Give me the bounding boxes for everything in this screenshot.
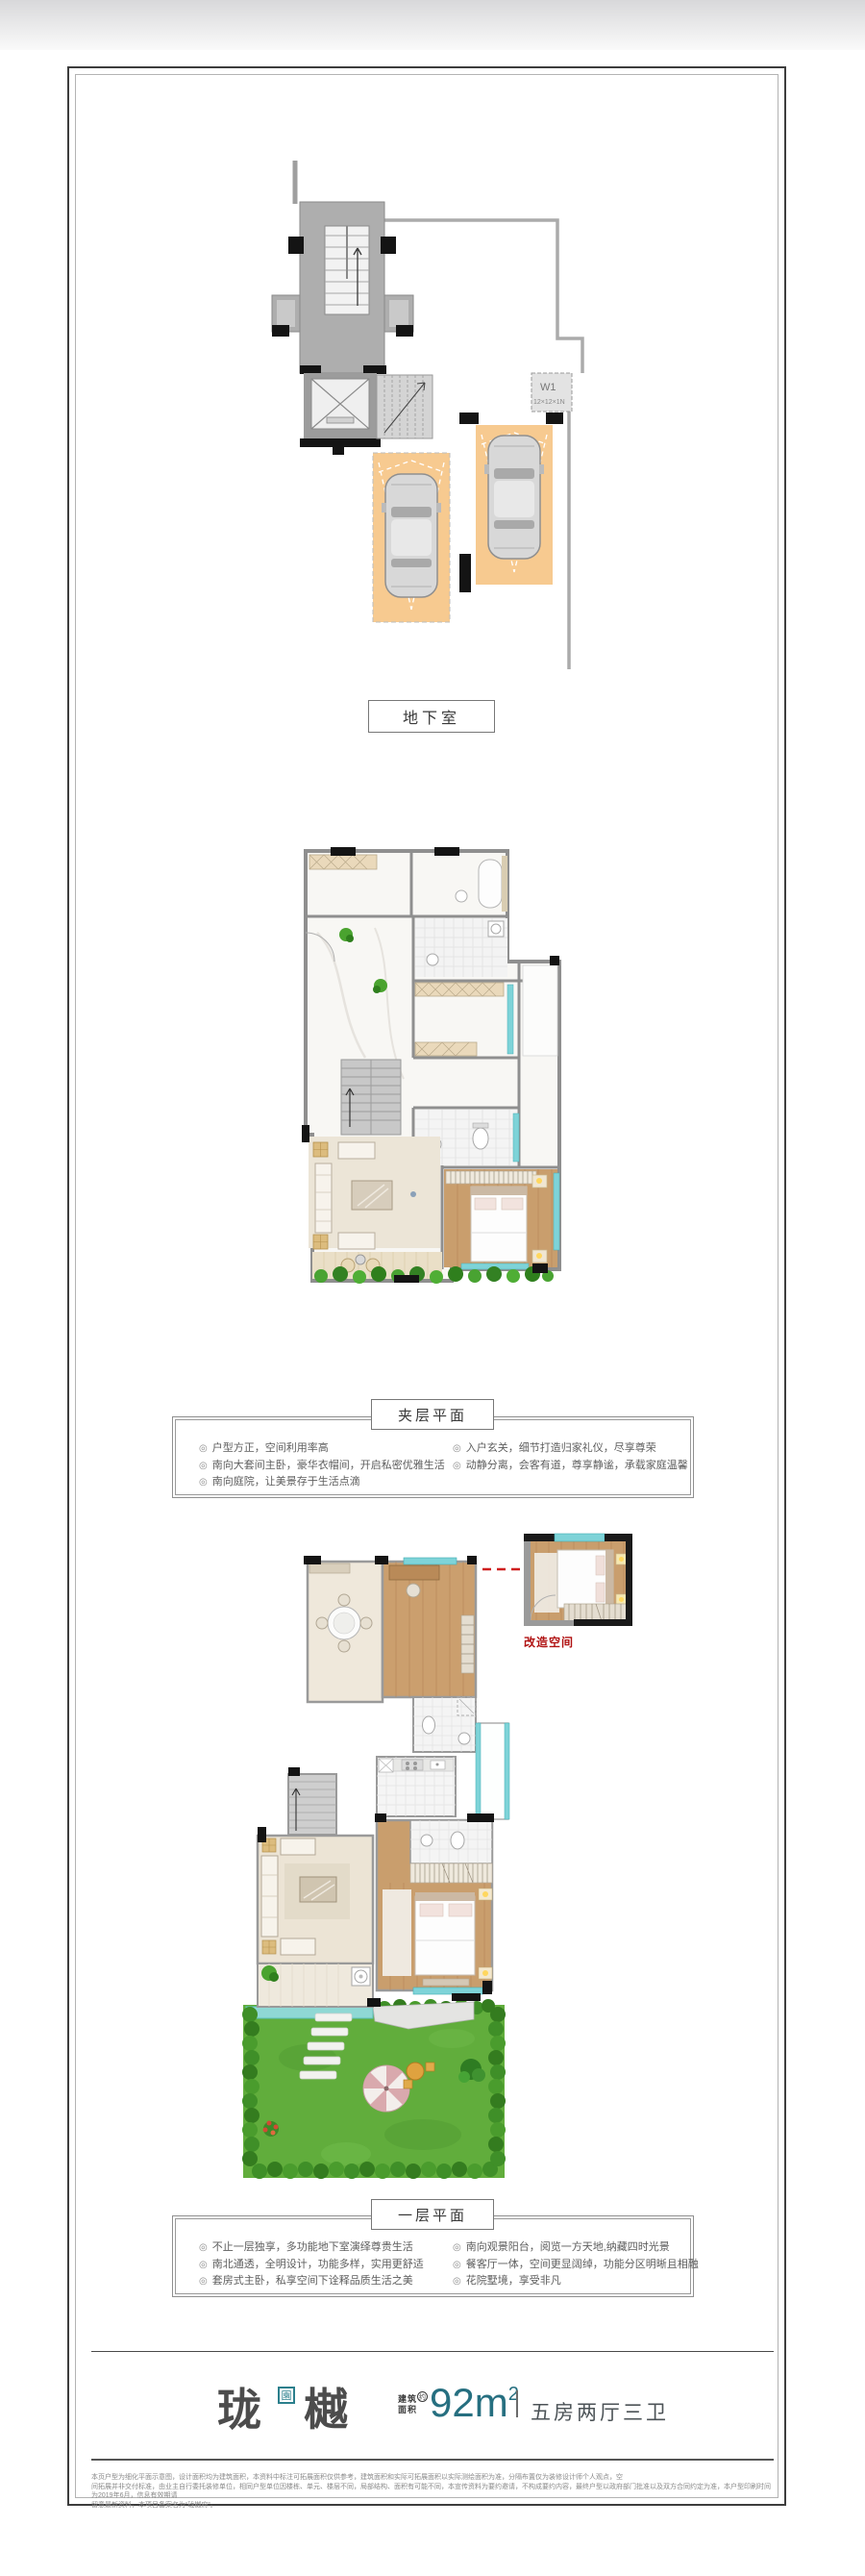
- kitchen: [377, 1757, 456, 1816]
- bullet-text: 南向大套间主卧，豪华衣帽间，开启私密优雅生活: [212, 1460, 445, 1471]
- list-item: ◎南向大套间主卧，豪华衣帽间，开启私密优雅生活: [199, 1458, 445, 1475]
- brand-char-first: 珑: [217, 2375, 261, 2438]
- area-label-top: 建筑: [398, 2394, 417, 2405]
- list-item: ◎入户玄关，细节打造归家礼仪，尽享尊荣: [453, 1440, 688, 1458]
- mezzanine-floor-plan: [288, 837, 577, 1288]
- list-item: ◎南向庭院，让美景存于生活点滴: [199, 1474, 445, 1491]
- basement-stairwell: [325, 226, 369, 314]
- entry-porch: [258, 1963, 373, 2007]
- list-item: ◎套房式主卧，私享空间下诠释品质生活之美: [199, 2273, 424, 2290]
- bullet-text: 南向庭院，让美景存于生活点滴: [212, 1476, 360, 1488]
- disclaimer-line-1: 本页户型为细化平面示意图，设计面积均为建筑面积，本资料中标注可拓展面积仅供参考，…: [91, 2473, 776, 2483]
- side-balcony: [476, 1723, 509, 1819]
- bullet-icon: ◎: [199, 1443, 208, 1454]
- list-item: ◎户型方正，空间利用率高: [199, 1440, 445, 1458]
- mezzanine-living: [309, 1137, 440, 1249]
- basement-floor-plan: W1 12×12×1N: [240, 135, 625, 673]
- bullet-icon: ◎: [199, 2276, 208, 2287]
- floor1-bullets-right: ◎南向观景阳台，阅览一方天地,纳藏四时光景 ◎餐客厅一体，空间更显阔绰，功能分区…: [453, 2239, 699, 2290]
- basement-elevator: [304, 373, 377, 438]
- car-left: [382, 474, 441, 597]
- bathroom-upper: [413, 1697, 476, 1752]
- stairs-floor1: [288, 1774, 336, 1835]
- floor1-bullets-left: ◎不止一层独享，多功能地下室演绎尊贵生活 ◎南北通透，全明设计，功能多样，实用更…: [199, 2239, 424, 2290]
- master-bedroom: [377, 1820, 492, 1994]
- mezzanine-label-box: 夹层平面: [371, 1399, 494, 1430]
- brand-seal-icon: 園: [278, 2387, 295, 2404]
- mezzanine-stairs: [341, 1060, 401, 1135]
- bullet-icon: ◎: [199, 2260, 208, 2270]
- bullet-text: 南北通透，全明设计，功能多样，实用更舒适: [212, 2259, 424, 2270]
- mezzanine-bullets-left: ◎户型方正，空间利用率高 ◎南向大套间主卧，豪华衣帽间，开启私密优雅生活 ◎南向…: [199, 1440, 445, 1491]
- bullet-text: 动静分离，会客有道，尊享静谧，承载家庭温馨: [466, 1460, 688, 1471]
- bullet-text: 南向观景阳台，阅览一方天地,纳藏四时光景: [466, 2241, 670, 2253]
- mezzanine-bedroom: [444, 1169, 559, 1269]
- bullet-icon: ◎: [199, 2242, 208, 2253]
- mezzanine-closet-top: [309, 855, 377, 869]
- bullet-text: 餐客厅一体，空间更显阔绰，功能分区明晰且相融: [466, 2259, 699, 2270]
- footer-bottom-rule: [91, 2459, 774, 2461]
- list-item: ◎餐客厅一体，空间更显阔绰，功能分区明晰且相融: [453, 2257, 699, 2274]
- bullet-icon: ◎: [453, 2242, 461, 2253]
- disclaimer-line-3: 留意最新资料，本项目备案名为“珑樾府”。: [91, 2501, 776, 2511]
- legend-code: W1: [540, 382, 556, 393]
- bullet-text: 不止一层独享，多功能地下室演绎尊贵生活: [212, 2241, 413, 2253]
- list-item: ◎动静分离，会客有道，尊享静谧，承载家庭温馨: [453, 1458, 688, 1475]
- study-room: [383, 1558, 476, 1697]
- car-right: [484, 436, 544, 559]
- legend-size: 12×12×1N: [533, 399, 565, 406]
- list-item: ◎南北通透，全明设计，功能多样，实用更舒适: [199, 2257, 424, 2274]
- disclaimer: 本页户型为细化平面示意图，设计面积均为建筑面积，本资料中标注可拓展面积仅供参考，…: [91, 2473, 776, 2510]
- garden-umbrella: [363, 2065, 409, 2112]
- bullet-icon: ◎: [453, 2260, 461, 2270]
- basement-label-box: 地下室: [368, 700, 495, 733]
- page-edge-shadow: [0, 0, 865, 50]
- list-item: ◎花院墅境，享受非凡: [453, 2273, 699, 2290]
- renovation-annotation: 改造空间: [524, 1635, 574, 1649]
- basement-label: 地下室: [403, 705, 460, 728]
- brand-seal-glyph: 園: [282, 2388, 292, 2403]
- bullet-icon: ◎: [199, 1461, 208, 1471]
- list-item: ◎不止一层独享，多功能地下室演绎尊贵生活: [199, 2239, 424, 2257]
- spec-divider: [516, 2390, 518, 2417]
- area-label-bottom: 面积: [398, 2405, 417, 2415]
- floor1-label: 一层平面: [398, 2205, 467, 2225]
- bullet-text: 花院墅境，享受非凡: [466, 2275, 561, 2287]
- bullet-text: 套房式主卧，私享空间下诠释品质生活之美: [212, 2275, 413, 2287]
- area-approx-glyph: 约: [419, 2392, 426, 2402]
- first-floor-plan: 改造空间: [231, 1500, 654, 2183]
- mezzanine-bullets-right: ◎入户玄关，细节打造归家礼仪，尽享尊荣 ◎动静分离，会客有道，尊享静谧，承载家庭…: [453, 1440, 688, 1474]
- detached-room: [524, 1534, 632, 1626]
- mezzanine-wc: [415, 918, 507, 977]
- bullet-text: 入户玄关，细节打造归家礼仪，尽享尊荣: [466, 1442, 656, 1454]
- layout-spec: 五房两厅三卫: [531, 2397, 669, 2426]
- area-approx-badge: 约: [417, 2391, 428, 2402]
- area-value: 92m2: [430, 2383, 519, 2423]
- area-number: 92m: [430, 2380, 508, 2425]
- bullet-icon: ◎: [199, 1477, 208, 1488]
- bullet-icon: ◎: [453, 1461, 461, 1471]
- disclaimer-line-2: 间拓展并非交付标准，由业主自行委托装修单位，相同户型单位因楼栋、单元、楼层不同，…: [91, 2483, 776, 2501]
- footer-top-rule: [91, 2351, 774, 2352]
- area-label: 建筑 面积: [398, 2394, 417, 2415]
- brand-char-second: 樾: [304, 2375, 348, 2438]
- mezzanine-label: 夹层平面: [398, 1405, 467, 1425]
- bullet-text: 户型方正，空间利用率高: [212, 1442, 329, 1454]
- poster-page: W1 12×12×1N 地下室: [0, 0, 865, 2576]
- basement-window-legend: W1 12×12×1N: [531, 373, 572, 412]
- list-item: ◎南向观景阳台，阅览一方天地,纳藏四时光景: [453, 2239, 699, 2257]
- mezzanine-lightwell: [523, 965, 557, 1056]
- basement-stairs-lower: [377, 375, 432, 438]
- bullet-icon: ◎: [453, 1443, 461, 1454]
- floor1-label-box: 一层平面: [371, 2199, 494, 2230]
- bullet-icon: ◎: [453, 2276, 461, 2287]
- dining-room: [308, 1562, 383, 1702]
